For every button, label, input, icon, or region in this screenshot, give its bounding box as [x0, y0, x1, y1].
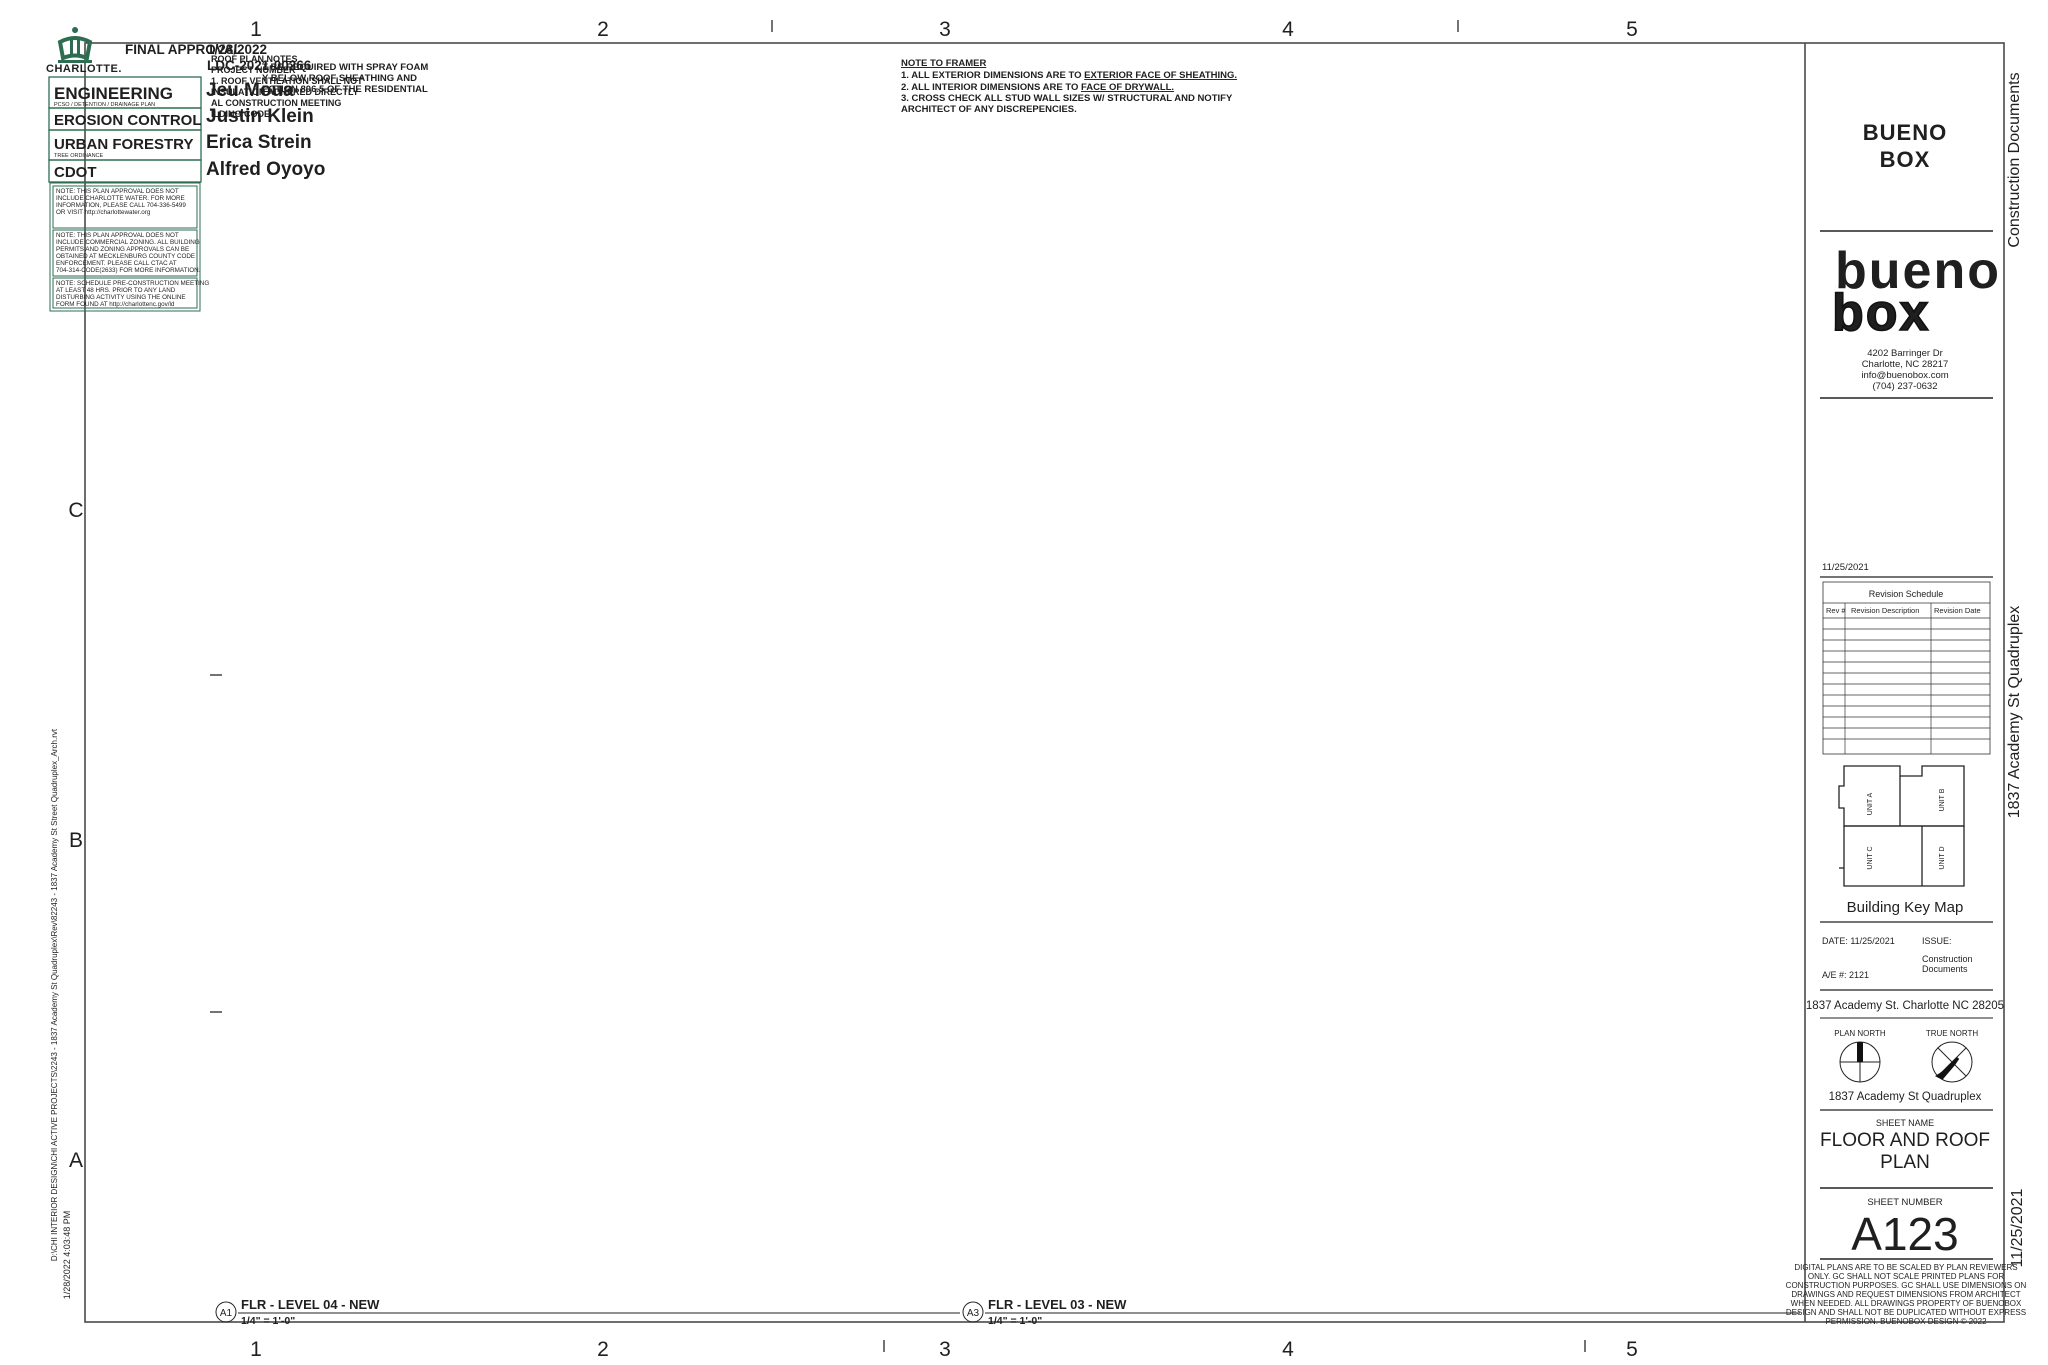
svg-text:Revision Schedule: Revision Schedule [1869, 589, 1944, 599]
svg-text:UNIT A: UNIT A [1867, 792, 1874, 815]
svg-text:SHEET NAME: SHEET NAME [1876, 1118, 1934, 1128]
svg-text:EROSION CONTROL: EROSION CONTROL [54, 112, 202, 129]
svg-text:PLAN: PLAN [1880, 1152, 1930, 1173]
svg-text:Alfred Oyoyo: Alfred Oyoyo [206, 159, 325, 180]
svg-text:4: 4 [1282, 1338, 1294, 1361]
svg-text:5: 5 [1626, 1338, 1638, 1361]
svg-text:PLAN NORTH: PLAN NORTH [1834, 1029, 1886, 1038]
svg-text:DATE: 11/25/2021: DATE: 11/25/2021 [1822, 936, 1895, 946]
svg-text:ISSUE:: ISSUE: [1922, 936, 1952, 946]
svg-text:OBTAINED AT MECKLENBURG COUNTY: OBTAINED AT MECKLENBURG COUNTY CODE [56, 253, 195, 260]
svg-text:Documents: Documents [1922, 964, 1968, 974]
svg-text:NOTE: THIS PLAN APPROVAL DOES: NOTE: THIS PLAN APPROVAL DOES NOT [56, 188, 179, 195]
svg-text:5: 5 [1626, 18, 1638, 41]
svg-text:Rev #: Rev # [1826, 606, 1846, 615]
svg-text:BOX: BOX [1880, 147, 1931, 172]
svg-text:Construction Documents: Construction Documents [2006, 72, 2023, 247]
svg-text:A/E #: 2121: A/E #: 2121 [1822, 970, 1869, 980]
svg-text:1837 Academy St Quadruplex: 1837 Academy St Quadruplex [2006, 606, 2023, 819]
svg-text:DESIGN AND SHALL NOT BE DUPLIC: DESIGN AND SHALL NOT BE DUPLICATED WITHO… [1786, 1308, 2026, 1317]
svg-text:1/4" = 1'-0": 1/4" = 1'-0" [988, 1315, 1042, 1327]
svg-text:1/28/2022 4:03:48 PM: 1/28/2022 4:03:48 PM [62, 1211, 72, 1300]
svg-text:T BE REQUIRED WITH SPRAY FOAM: T BE REQUIRED WITH SPRAY FOAM [262, 62, 428, 73]
svg-text:box: box [1832, 284, 1930, 342]
svg-text:DISTURBING ACTIVITY USING THE: DISTURBING ACTIVITY USING THE ONLINE [56, 294, 186, 301]
svg-text:(704) 237-0632: (704) 237-0632 [1873, 381, 1938, 392]
svg-text:2. ALL INTERIOR DIMENSIONS ARE: 2. ALL INTERIOR DIMENSIONS ARE TO FACE O… [901, 82, 1174, 93]
svg-text:Charlotte, NC 28217: Charlotte, NC 28217 [1862, 359, 1949, 370]
svg-text:ENGINEERING: ENGINEERING [54, 84, 173, 103]
svg-text:ARCHITECT OF ANY DISCREPENCIES: ARCHITECT OF ANY DISCREPENCIES. [901, 104, 1077, 115]
svg-text:Construction: Construction [1922, 954, 1973, 964]
svg-text:4: 4 [1282, 18, 1294, 41]
svg-text:FLOOR AND ROOF: FLOOR AND ROOF [1820, 1130, 1990, 1151]
svg-text:info@buenobox.com: info@buenobox.com [1861, 370, 1948, 381]
svg-text:1/4" = 1'-0": 1/4" = 1'-0" [241, 1315, 295, 1327]
svg-text:PCSO / DETENTION / DRAINAGE PL: PCSO / DETENTION / DRAINAGE PLAN [54, 102, 155, 108]
svg-text:CDOT: CDOT [54, 164, 97, 181]
svg-text:NOTE: THIS PLAN APPROVAL DOES: NOTE: THIS PLAN APPROVAL DOES NOT [56, 232, 179, 239]
svg-text:UNIT D: UNIT D [1939, 846, 1946, 869]
svg-text:ENFORCEMENT. PLEASE CALL CTAC: ENFORCEMENT. PLEASE CALL CTAC AT [56, 260, 177, 267]
svg-text:UNIT B: UNIT B [1939, 788, 1946, 811]
svg-text:3: 3 [939, 1338, 951, 1361]
svg-text:TREE ORDINANCE: TREE ORDINANCE [54, 153, 104, 159]
svg-text:11/25/2021: 11/25/2021 [1822, 562, 1869, 573]
svg-text:BUENO: BUENO [1863, 120, 1947, 145]
svg-text:CHARLOTTE.: CHARLOTTE. [46, 63, 122, 75]
svg-text:ONLY. GC SHALL NOT SCALE PRINT: ONLY. GC SHALL NOT SCALE PRINTED PLANS F… [1808, 1272, 2004, 1281]
svg-text:1: 1 [250, 1338, 262, 1361]
svg-text:3. CROSS CHECK ALL STUD WALL S: 3. CROSS CHECK ALL STUD WALL SIZES W/ ST… [901, 93, 1233, 104]
svg-text:NOTE TO FRAMER: NOTE TO FRAMER [901, 58, 986, 69]
svg-text:TRUE NORTH: TRUE NORTH [1926, 1029, 1979, 1038]
svg-text:AT LEAST 48 HRS. PRIOR TO ANY: AT LEAST 48 HRS. PRIOR TO ANY LAND [56, 287, 176, 294]
svg-text:FLR - LEVEL 03 - NEW: FLR - LEVEL 03 - NEW [988, 1297, 1127, 1312]
svg-text:PERMISSION. BUENOBOX DESIGN ©: PERMISSION. BUENOBOX DESIGN © 2022 [1825, 1317, 1987, 1326]
svg-text:1837 Academy St Quadruplex: 1837 Academy St Quadruplex [1829, 1091, 1982, 1103]
svg-text:DIGITAL PLANS ARE TO BE SCALED: DIGITAL PLANS ARE TO BE SCALED BY PLAN R… [1794, 1263, 2017, 1272]
svg-text:Building Key Map: Building Key Map [1847, 899, 1964, 916]
svg-text:WHEN NEEDED. ALL DRAWINGS PROP: WHEN NEEDED. ALL DRAWINGS PROPERTY OF BU… [1791, 1299, 2022, 1308]
svg-text:URBAN FORESTRY: URBAN FORESTRY [54, 136, 193, 153]
svg-text:1: 1 [250, 18, 262, 41]
svg-text:3: 3 [939, 18, 951, 41]
svg-text:Revision Date: Revision Date [1934, 606, 1981, 615]
svg-text:FLR - LEVEL 04 - NEW: FLR - LEVEL 04 - NEW [241, 1297, 380, 1312]
svg-text:Revision Description: Revision Description [1851, 606, 1919, 615]
svg-text:INCLUDE CHARLOTTE WATER. FOR: INCLUDE CHARLOTTE WATER. FOR MORE [56, 195, 185, 202]
svg-text:OR VISIT http://charlottewater: OR VISIT http://charlottewater.org [56, 209, 151, 216]
svg-text:D:\CHI INTERIOR DESIGN\CHI ACT: D:\CHI INTERIOR DESIGN\CHI ACTIVE PROJEC… [50, 728, 59, 1261]
svg-text:A123: A123 [1851, 1208, 1958, 1260]
svg-text:INCLUDE COMMERCIAL ZONING. AL: INCLUDE COMMERCIAL ZONING. ALL BUILDING [56, 239, 200, 246]
svg-text:11/25/2021: 11/25/2021 [2009, 1188, 2026, 1267]
svg-text:704-314-CODE(2633) FOR MORE IN: 704-314-CODE(2633) FOR MORE INFORMATION. [56, 267, 201, 274]
svg-text:B: B [69, 829, 83, 852]
svg-text:2: 2 [597, 18, 609, 41]
svg-text:A1: A1 [220, 1308, 233, 1319]
svg-text:C: C [68, 499, 83, 522]
svg-text:CONSTRUCTION PURPOSES. GC SHAL: CONSTRUCTION PURPOSES. GC SHALL USE DIME… [1786, 1281, 2027, 1290]
svg-text:A3: A3 [967, 1308, 980, 1319]
svg-text:2: 2 [597, 1338, 609, 1361]
svg-text:1837 Academy St. Charlotte NC: 1837 Academy St. Charlotte NC 28205 [1806, 1000, 2004, 1012]
svg-text:4202 Barringer Dr: 4202 Barringer Dr [1867, 348, 1943, 359]
svg-text:UNIT C: UNIT C [1867, 846, 1874, 869]
svg-text:A: A [69, 1149, 83, 1172]
svg-text:ECTION 806.5 OF THE RESIDENTIA: ECTION 806.5 OF THE RESIDENTIAL [262, 84, 428, 95]
svg-text:SHEET NUMBER: SHEET NUMBER [1867, 1197, 1942, 1208]
svg-text:INFORMATION, PLEASE CALL 704-3: INFORMATION, PLEASE CALL 704-336-5499 [56, 202, 186, 209]
svg-text:NOTE: SCHEDULE PRE-CONSTRUCTI: NOTE: SCHEDULE PRE-CONSTRUCTION MEETING [56, 280, 209, 287]
svg-text:Y BELOW ROOF SHEATHING AND: Y BELOW ROOF SHEATHING AND [262, 73, 417, 84]
svg-text:PERMITS AND ZONING APPROVALS C: PERMITS AND ZONING APPROVALS CAN BE [56, 246, 189, 253]
svg-text:1. ALL EXTERIOR DIMENSIONS ARE: 1. ALL EXTERIOR DIMENSIONS ARE TO EXTERI… [901, 70, 1237, 81]
svg-text:DRAWINGS AND REQUEST DIMENSION: DRAWINGS AND REQUEST DIMENSIONS FROM ARC… [1791, 1290, 2020, 1299]
svg-text:Justin Klein: Justin Klein [206, 106, 314, 127]
svg-text:FORM FOUND AT http://charlotte: FORM FOUND AT http://charlottenc.gov/ld [56, 301, 175, 308]
svg-text:Erica Strein: Erica Strein [206, 132, 312, 153]
